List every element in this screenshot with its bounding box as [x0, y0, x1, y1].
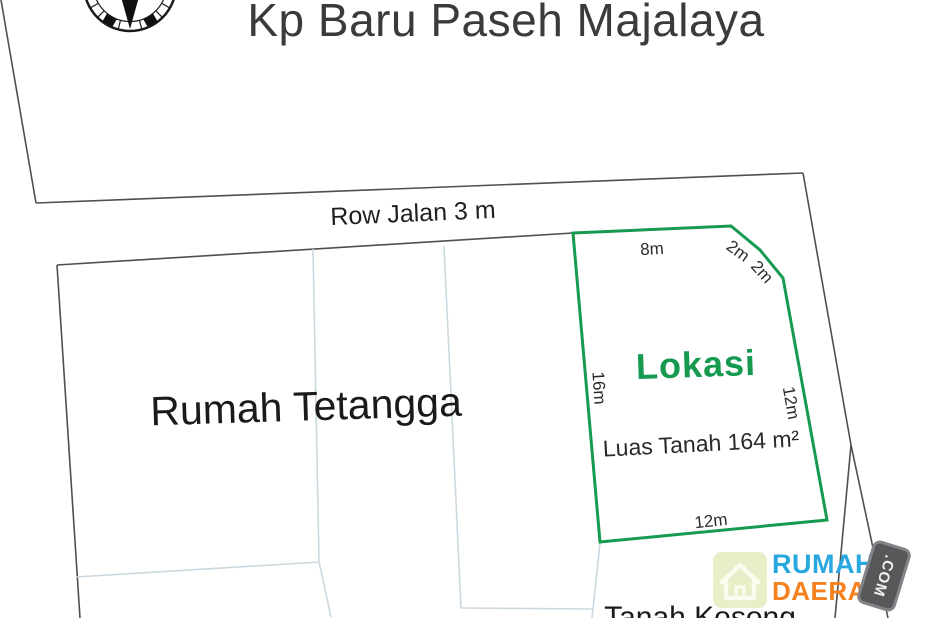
divider-line-2	[444, 246, 461, 608]
site-plan-canvas: Kp Baru Paseh Majalaya Row Jalan 3 m Rum…	[0, 0, 927, 618]
outer-boundary-left-line	[1, 0, 36, 203]
dimension-left-16m: 16m	[589, 371, 608, 405]
divider-line-horizontal-right	[461, 608, 592, 609]
page-title: Kp Baru Paseh Majalaya	[247, 0, 764, 43]
divider-line-1-lower	[319, 562, 331, 617]
neighbor-area-label: Rumah Tetangga	[150, 382, 463, 433]
site-plan-linework	[0, 0, 927, 618]
empty-land-left-line	[592, 543, 600, 618]
neighbor-block-left-line	[57, 265, 80, 618]
dimension-bottom-12m: 12m	[694, 511, 729, 531]
compass-icon	[84, 0, 176, 31]
right-plot-divider-line	[835, 445, 851, 618]
divider-line-horizontal-left	[76, 562, 319, 577]
road-bottom-line	[57, 233, 573, 265]
location-plot-label: Lokasi	[635, 345, 756, 385]
empty-land-label: Tanah Kosong	[604, 603, 796, 618]
outer-boundary-right-line	[803, 173, 888, 618]
dimension-top-8m: 8m	[640, 240, 664, 258]
